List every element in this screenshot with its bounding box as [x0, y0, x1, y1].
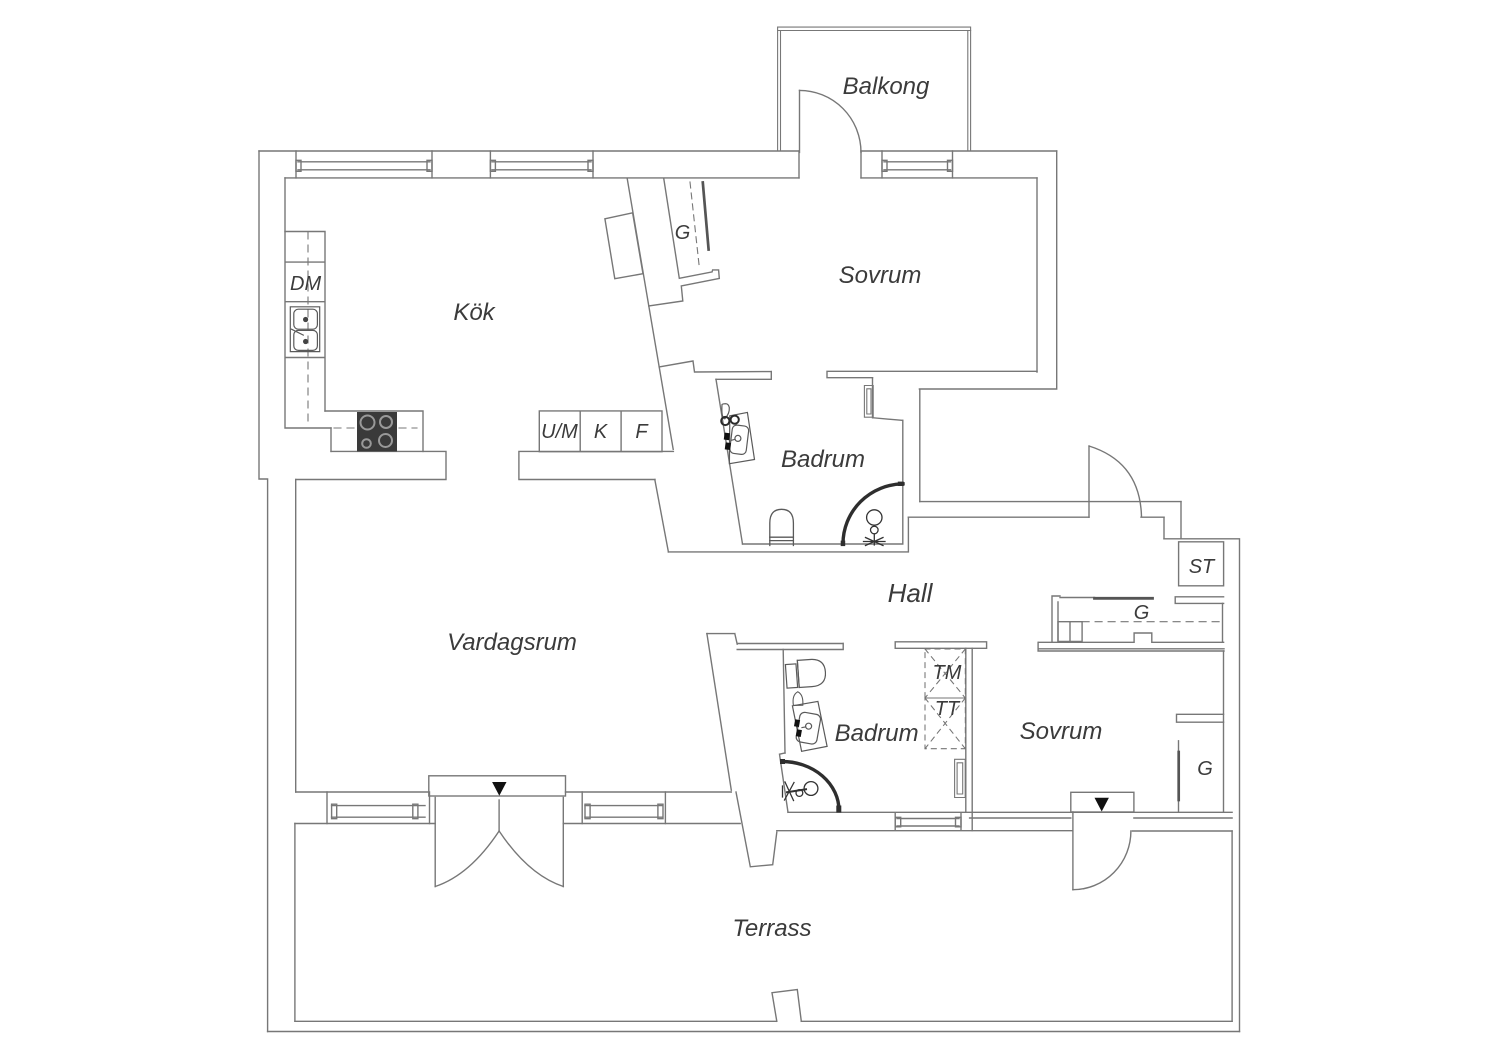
svg-text:Kök: Kök — [453, 299, 496, 326]
svg-text:F: F — [635, 421, 649, 443]
svg-text:ST: ST — [1189, 556, 1216, 578]
svg-text:Vardagsrum: Vardagsrum — [447, 629, 577, 656]
svg-text:G: G — [1134, 602, 1150, 624]
svg-text:G: G — [1197, 758, 1213, 780]
svg-text:DM: DM — [290, 273, 321, 295]
svg-text:TM: TM — [933, 662, 962, 684]
svg-text:Sovrum: Sovrum — [839, 262, 922, 289]
svg-text:U/M: U/M — [541, 421, 578, 443]
svg-text:Sovrum: Sovrum — [1020, 718, 1103, 745]
svg-text:Badrum: Badrum — [781, 446, 865, 473]
svg-text:Terrass: Terrass — [732, 915, 811, 942]
svg-text:Balkong: Balkong — [843, 73, 930, 100]
svg-text:K: K — [594, 421, 609, 443]
svg-text:Hall: Hall — [888, 578, 934, 608]
svg-text:TT: TT — [935, 698, 961, 720]
svg-text:G: G — [675, 222, 691, 244]
svg-text:Badrum: Badrum — [835, 720, 919, 747]
